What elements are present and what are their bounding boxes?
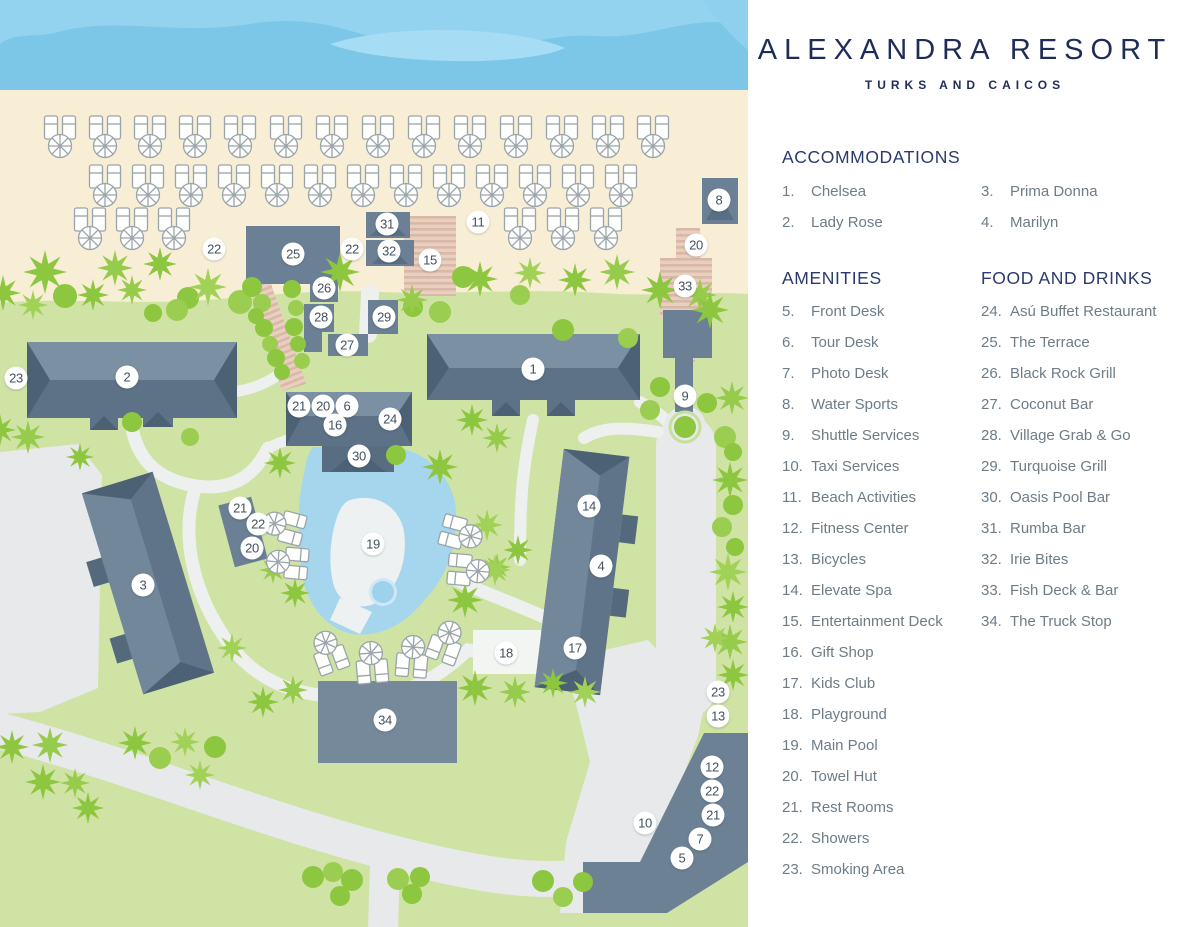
legend-item: 14. Elevate Spa (782, 583, 943, 598)
map-marker-30: 30 (348, 445, 371, 468)
legend-item: 21. Rest Rooms (782, 800, 943, 815)
legend-item-label: Main Pool (811, 738, 878, 753)
legend-item: 23. Smoking Area (782, 862, 943, 877)
legend-item-number: 20. (782, 769, 811, 784)
legend-item-number: 27. (981, 397, 1010, 412)
legend-item: 33. Fish Deck & Bar (981, 583, 1156, 598)
legend-item: 26. Black Rock Grill (981, 366, 1156, 381)
legend-item: 4. Marilyn (981, 215, 1098, 230)
legend-item: 32. Irie Bites (981, 552, 1156, 567)
map-marker-21: 21 (702, 804, 725, 827)
legend-item-label: Smoking Area (811, 862, 904, 877)
legend-item-label: Asú Buffet Restaurant (1010, 304, 1156, 319)
legend-item-label: Front Desk (811, 304, 884, 319)
legend-item: 17. Kids Club (782, 676, 943, 691)
accommodations-heading: ACCOMMODATIONS (782, 147, 960, 168)
legend-item-label: Playground (811, 707, 887, 722)
legend-item: 16. Gift Shop (782, 645, 943, 660)
legend-item: 30. Oasis Pool Bar (981, 490, 1156, 505)
legend-item-label: Taxi Services (811, 459, 899, 474)
map-marker-17: 17 (564, 637, 587, 660)
legend-item-label: Water Sports (811, 397, 898, 412)
legend-item-label: The Terrace (1010, 335, 1090, 350)
legend-item-number: 23. (782, 862, 811, 877)
legend-item-label: Tour Desk (811, 335, 879, 350)
legend-item: 5. Front Desk (782, 304, 943, 319)
map-marker-21: 21 (288, 395, 311, 418)
map-marker-28: 28 (310, 306, 333, 329)
legend-item-number: 30. (981, 490, 1010, 505)
map-marker-22: 22 (247, 513, 270, 536)
food-list: 24. Asú Buffet Restaurant 25. The Terrac… (981, 304, 1156, 645)
legend-item-label: Prima Donna (1010, 184, 1098, 199)
legend-item: 20. Towel Hut (782, 769, 943, 784)
ocean (0, 0, 748, 90)
legend-item-number: 19. (782, 738, 811, 753)
legend-item-number: 9. (782, 428, 811, 443)
map-marker-32: 32 (378, 240, 401, 263)
map-marker-24: 24 (379, 408, 402, 431)
legend-item: 29. Turquoise Grill (981, 459, 1156, 474)
legend-item: 11. Beach Activities (782, 490, 943, 505)
legend-item-number: 26. (981, 366, 1010, 381)
legend-item: 3. Prima Donna (981, 184, 1098, 199)
legend-item-number: 32. (981, 552, 1010, 567)
map-marker-10: 10 (634, 812, 657, 835)
legend-item-label: Fitness Center (811, 521, 909, 536)
map-marker-22: 22 (701, 780, 724, 803)
legend-item-number: 4. (981, 215, 1010, 230)
map-marker-5: 5 (671, 847, 694, 870)
legend-item-number: 7. (782, 366, 811, 381)
legend-item-number: 31. (981, 521, 1010, 536)
legend-item-number: 17. (782, 676, 811, 691)
legend-item-label: The Truck Stop (1010, 614, 1112, 629)
resort-subtitle: TURKS AND CAICOS (748, 78, 1182, 92)
map-marker-3: 3 (132, 574, 155, 597)
map-marker-31: 31 (376, 213, 399, 236)
map-marker-12: 12 (701, 756, 724, 779)
map-marker-9: 9 (674, 385, 697, 408)
legend-item: 1. Chelsea (782, 184, 883, 199)
map-marker-29: 29 (373, 306, 396, 329)
legend-item: 10. Taxi Services (782, 459, 943, 474)
resort-brand: ALEXANDRA RESORT TURKS AND CAICOS (748, 34, 1182, 92)
legend-item-number: 11. (782, 490, 811, 505)
legend-item-label: Bicycles (811, 552, 866, 567)
map-marker-34: 34 (374, 709, 397, 732)
map-marker-15: 15 (419, 249, 442, 272)
legend-item-label: Black Rock Grill (1010, 366, 1116, 381)
resort-map: 2225223132151182033262829272321921206162… (0, 0, 748, 927)
legend-item: 12. Fitness Center (782, 521, 943, 536)
legend-item: 13. Bicycles (782, 552, 943, 567)
legend-item: 34. The Truck Stop (981, 614, 1156, 629)
legend-item-label: Village Grab & Go (1010, 428, 1131, 443)
legend-item-number: 8. (782, 397, 811, 412)
map-marker-33: 33 (674, 275, 697, 298)
legend-item-label: Oasis Pool Bar (1010, 490, 1110, 505)
accommodations-list-col2: 3. Prima Donna 4. Marilyn (981, 184, 1098, 246)
legend-item-label: Chelsea (811, 184, 866, 199)
legend-item-number: 15. (782, 614, 811, 629)
map-marker-25: 25 (282, 243, 305, 266)
legend-item-label: Turquoise Grill (1010, 459, 1107, 474)
map-marker-20: 20 (685, 234, 708, 257)
legend-item: 22. Showers (782, 831, 943, 846)
legend-item-number: 34. (981, 614, 1010, 629)
legend-item: 7. Photo Desk (782, 366, 943, 381)
map-marker-11: 11 (467, 211, 490, 234)
map-marker-16: 16 (324, 414, 347, 437)
map-marker-2: 2 (116, 366, 139, 389)
legend-item: 6. Tour Desk (782, 335, 943, 350)
legend-panel: ALEXANDRA RESORT TURKS AND CAICOS ACCOMM… (748, 0, 1200, 927)
accommodations-list-col1: 1. Chelsea 2. Lady Rose (782, 184, 883, 246)
legend-item-number: 10. (782, 459, 811, 474)
legend-item-label: Kids Club (811, 676, 875, 691)
legend-item-number: 33. (981, 583, 1010, 598)
resort-title: ALEXANDRA RESORT (748, 34, 1182, 67)
map-marker-13: 13 (707, 705, 730, 728)
legend-item-label: Marilyn (1010, 215, 1058, 230)
legend-item-label: Gift Shop (811, 645, 874, 660)
legend-item-number: 6. (782, 335, 811, 350)
map-marker-20: 20 (241, 537, 264, 560)
legend-item: 18. Playground (782, 707, 943, 722)
legend-item-number: 29. (981, 459, 1010, 474)
map-marker-27: 27 (336, 334, 359, 357)
resort-map-graphic (0, 0, 748, 927)
map-marker-14: 14 (578, 495, 601, 518)
map-marker-1: 1 (522, 358, 545, 381)
map-marker-7: 7 (689, 828, 712, 851)
roundabout-tree (670, 412, 700, 442)
legend-item-label: Fish Deck & Bar (1010, 583, 1118, 598)
legend-item-label: Elevate Spa (811, 583, 892, 598)
amenities-heading: AMENITIES (782, 268, 882, 289)
legend-item: 19. Main Pool (782, 738, 943, 753)
legend-item-number: 16. (782, 645, 811, 660)
legend-item: 31. Rumba Bar (981, 521, 1156, 536)
legend-item-label: Irie Bites (1010, 552, 1068, 567)
legend-item: 25. The Terrace (981, 335, 1156, 350)
map-marker-4: 4 (590, 555, 613, 578)
legend-item-label: Shuttle Services (811, 428, 919, 443)
map-marker-26: 26 (313, 277, 336, 300)
legend-item-number: 21. (782, 800, 811, 815)
legend-item-label: Showers (811, 831, 869, 846)
legend-item: 24. Asú Buffet Restaurant (981, 304, 1156, 319)
legend-item: 8. Water Sports (782, 397, 943, 412)
food-heading: FOOD AND DRINKS (981, 268, 1152, 289)
map-marker-18: 18 (495, 642, 518, 665)
legend-item-number: 13. (782, 552, 811, 567)
legend-item-label: Lady Rose (811, 215, 883, 230)
legend-item-number: 1. (782, 184, 811, 199)
legend-item-label: Rumba Bar (1010, 521, 1086, 536)
legend-item-label: Entertainment Deck (811, 614, 943, 629)
legend-item-number: 22. (782, 831, 811, 846)
legend-item-number: 3. (981, 184, 1010, 199)
legend-item: 9. Shuttle Services (782, 428, 943, 443)
map-marker-8: 8 (708, 189, 731, 212)
legend-item: 27. Coconut Bar (981, 397, 1156, 412)
legend-item-label: Towel Hut (811, 769, 877, 784)
legend-item: 28. Village Grab & Go (981, 428, 1156, 443)
amenities-list: 5. Front Desk 6. Tour Desk 7. Photo Desk… (782, 304, 943, 893)
legend-item: 2. Lady Rose (782, 215, 883, 230)
map-marker-23: 23 (707, 681, 730, 704)
legend-item-label: Beach Activities (811, 490, 916, 505)
legend-item-label: Coconut Bar (1010, 397, 1093, 412)
legend-item-number: 5. (782, 304, 811, 319)
legend-item-number: 2. (782, 215, 811, 230)
legend-item-number: 28. (981, 428, 1010, 443)
legend-item-label: Photo Desk (811, 366, 889, 381)
legend-item-number: 14. (782, 583, 811, 598)
legend-item-number: 18. (782, 707, 811, 722)
legend-item-number: 24. (981, 304, 1010, 319)
legend-item-number: 12. (782, 521, 811, 536)
map-marker-19: 19 (362, 533, 385, 556)
map-marker-22: 22 (341, 238, 364, 261)
legend-item-number: 25. (981, 335, 1010, 350)
map-marker-23: 23 (5, 367, 28, 390)
legend-item-label: Rest Rooms (811, 800, 894, 815)
legend-item: 15. Entertainment Deck (782, 614, 943, 629)
map-marker-22: 22 (203, 238, 226, 261)
